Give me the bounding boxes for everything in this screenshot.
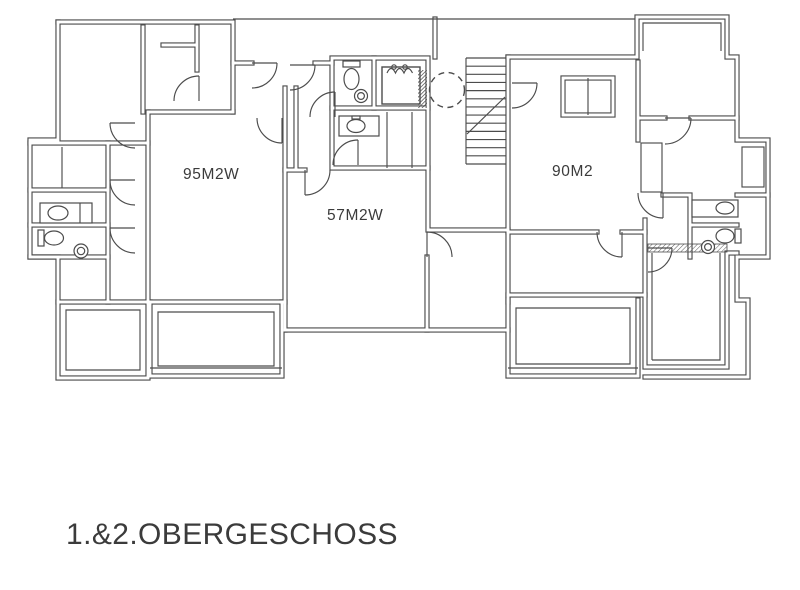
door-swing-icon xyxy=(427,232,452,257)
wing-right-shower xyxy=(742,147,764,187)
sink-icon xyxy=(347,120,365,133)
outer-and-interior-walls xyxy=(30,17,768,378)
bath-middle-fixtures xyxy=(339,116,379,136)
sink-icon xyxy=(705,244,712,251)
shaft-hatch xyxy=(418,70,427,108)
door-swing-icon xyxy=(110,180,135,205)
sink-icon xyxy=(716,202,734,214)
toilet-icon xyxy=(45,231,64,245)
balcony-center-inner xyxy=(508,308,638,368)
elevator-shaft-icon xyxy=(382,65,427,108)
sink-icon xyxy=(77,247,84,254)
toilet-icon xyxy=(716,229,734,243)
scanned-floor-plan-page: 95M2W 57M2W 90M2 1.&2.OBERGESCHOSS xyxy=(0,0,800,590)
apartment-label-95m2w: 95M2W xyxy=(183,166,239,183)
toilet-icon xyxy=(735,229,741,243)
apartment-label-57m2w: 57M2W xyxy=(327,207,383,224)
door-swing-icon xyxy=(110,228,135,253)
tap xyxy=(352,116,360,119)
door-swing-icon xyxy=(597,232,622,257)
site-and-detail-lines xyxy=(62,19,764,370)
sink-icon xyxy=(48,206,68,220)
lower-left-room-inner xyxy=(66,310,140,370)
door-swing-icon xyxy=(305,170,330,195)
door-swing-icon xyxy=(257,118,282,143)
floor-plan-svg: 95M2W 57M2W 90M2 1.&2.OBERGESCHOSS xyxy=(0,0,800,590)
toilet-icon xyxy=(38,230,44,246)
sink-icon xyxy=(358,93,365,100)
balcony-left-inner xyxy=(150,312,282,368)
door-swing-icon xyxy=(252,63,277,88)
door-swing-icon xyxy=(638,193,663,218)
radiator-scallop xyxy=(387,69,413,74)
door-swing-icon xyxy=(333,140,358,165)
floor-caption: 1.&2.OBERGESCHOSS xyxy=(66,518,398,551)
bathroom-dividers xyxy=(387,112,412,168)
toilet-icon xyxy=(343,61,360,67)
door-swing-icon xyxy=(665,118,691,144)
wardrobe-rect xyxy=(641,143,662,192)
wc-middle-fixtures xyxy=(343,61,368,103)
staircase-icon xyxy=(466,58,506,164)
left-wing-fixtures xyxy=(38,203,92,258)
apartment-label-90m2: 90M2 xyxy=(552,163,593,180)
door-swing-icon xyxy=(512,83,537,108)
toilet-icon xyxy=(344,69,359,90)
door-swing-icon xyxy=(174,76,199,101)
protrusion-room-inner xyxy=(643,23,721,51)
dashed-circle-marker xyxy=(430,73,465,108)
bottom-room-inner xyxy=(652,253,720,360)
